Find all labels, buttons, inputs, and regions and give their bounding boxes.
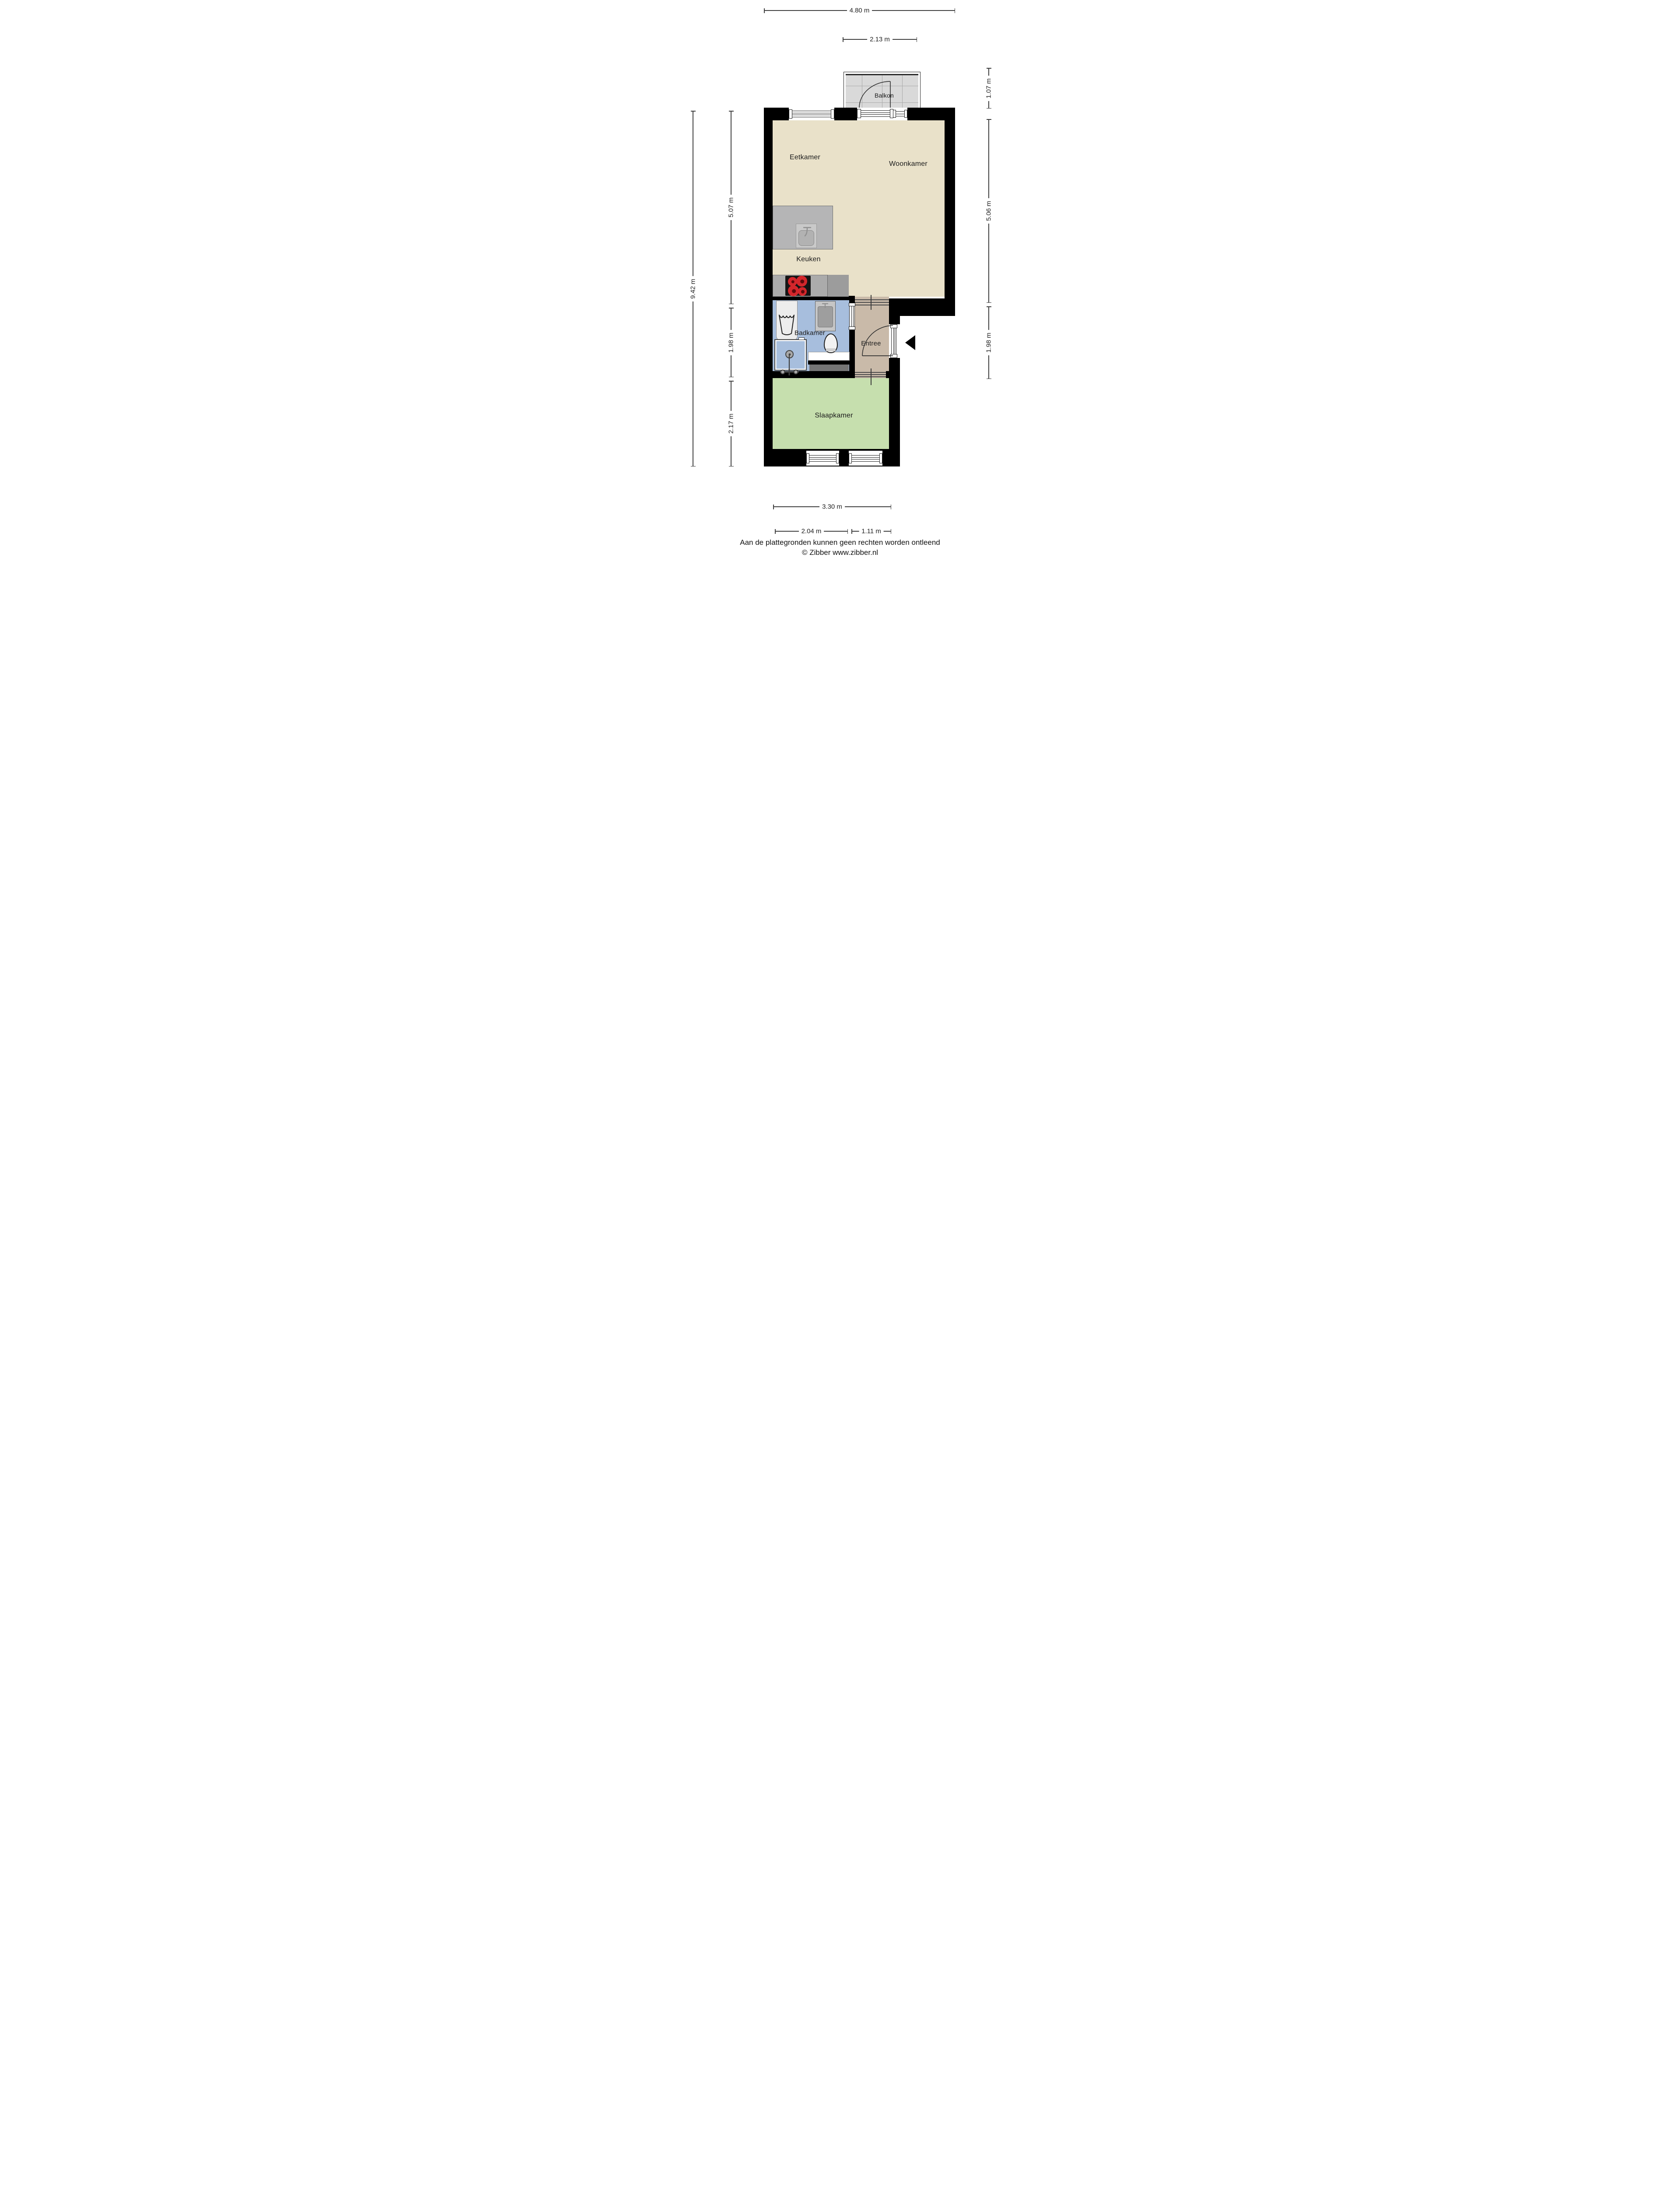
toilet-cistern: [808, 352, 850, 361]
room-label-balkon: Balkon: [875, 92, 894, 99]
kitchen-counter-tall-unit: [827, 275, 849, 297]
door-cap: [890, 354, 897, 358]
dimension-label: 4.80 m: [847, 7, 872, 15]
shower-door-handle: [798, 337, 805, 340]
dimension-label: 2.04 m: [799, 527, 824, 536]
window-cap: [831, 109, 834, 119]
dimension-label: 1.98 m: [985, 330, 993, 355]
cooktop-burner: [788, 277, 797, 286]
door-cap: [890, 324, 897, 328]
dimension-label: 2.13 m: [867, 35, 892, 44]
balcony-slider-panel-small: [896, 111, 905, 116]
window-cap: [893, 110, 896, 118]
balcony-floor: [846, 74, 918, 108]
dimension-label: 1.07 m: [985, 76, 993, 101]
window-cap: [789, 109, 792, 119]
door-jamb-line: [851, 303, 852, 330]
door-jamb-line: [853, 303, 854, 330]
dimension-label: 5.07 m: [727, 195, 735, 220]
window-glass-line: [852, 459, 879, 459]
footer-disclaimer: Aan de plattegronden kunnen geen rechten…: [630, 537, 1050, 558]
bathroom-sink-basin: [818, 306, 833, 327]
window-cap: [857, 109, 861, 118]
dimension-label: 9.42 m: [689, 276, 697, 302]
room-label-woonkamer: Woonkamer: [889, 160, 927, 168]
wall-left: [764, 108, 773, 466]
wall-right-main: [945, 108, 955, 316]
toilet-niche-wall: [808, 361, 850, 365]
window-bedroom-right-frame: [851, 455, 880, 462]
bathroom-door-frame: [849, 303, 855, 330]
window-bedroom-left-frame: [809, 455, 836, 462]
room-hall: [855, 297, 889, 371]
cooktop-indicator-lights: [803, 277, 804, 278]
wall-top-left-corner: [764, 108, 789, 120]
door-jamb-line: [893, 326, 894, 356]
dimension-label: 5.06 m: [985, 198, 993, 224]
dimension-label: 2.17 m: [727, 411, 735, 436]
room-label-entree: Entree: [861, 340, 881, 347]
window-cap: [806, 453, 809, 463]
room-label-slaapkamer: Slaapkamer: [815, 412, 853, 420]
toilet-icon: [824, 333, 838, 353]
dimension-label: 1.11 m: [859, 527, 884, 536]
passage-living-hall-line: [855, 305, 889, 305]
passage-living-hall-line: [855, 302, 889, 303]
window-glass-line: [792, 113, 831, 113]
passage-living-hall-line: [855, 299, 889, 300]
window-cap: [879, 453, 882, 463]
window-glass-line: [861, 114, 890, 115]
balcony-wall-edge: [846, 74, 918, 75]
entrance-arrow: [905, 335, 915, 350]
wall-main-bottom-step: [889, 298, 955, 316]
door-jamb-line: [895, 326, 895, 356]
cooktop-burner: [798, 287, 807, 296]
copyright-text: © Zibber www.zibber.nl: [630, 547, 1050, 558]
cooktop-burner: [796, 276, 807, 287]
window-glass-line: [809, 459, 836, 459]
wall-hall-right-upper: [889, 316, 900, 324]
window-cap: [849, 453, 852, 463]
dimension-label: 3.30 m: [819, 503, 845, 511]
bathroom-mat: [809, 365, 849, 371]
wall-top-mid: [834, 108, 857, 120]
window-glass-line: [896, 114, 904, 114]
window-glass-line: [852, 457, 879, 458]
disclaimer-text: Aan de plattegronden kunnen geen rechten…: [630, 537, 1050, 547]
front-door-frame: [891, 326, 896, 357]
kitchen-sink-basin: [798, 230, 814, 246]
room-label-keuken: Keuken: [796, 256, 820, 263]
balcony-slider-panel-large: [861, 110, 890, 117]
door-cap: [849, 326, 855, 330]
window-cap: [836, 453, 839, 463]
cooktop-burner: [788, 285, 799, 296]
dimension-label: 1.98 m: [727, 330, 735, 355]
window-cap: [904, 110, 907, 118]
window-glass-line: [809, 457, 836, 458]
floorplan-canvas: Balkon Eetkamer Woonkamer Keuken Badkame…: [630, 0, 1050, 560]
room-label-badkamer: Badkamer: [794, 330, 825, 337]
wall-strip-bedroom-nub: [886, 371, 900, 378]
wall-strip-bedroom-left: [764, 371, 855, 378]
room-label-eetkamer: Eetkamer: [790, 154, 820, 161]
window-glass-line: [861, 112, 890, 113]
window-top-left-frame: [792, 111, 831, 117]
passage-tick: [871, 368, 871, 385]
window-glass-line: [792, 115, 831, 115]
passage-tick: [871, 295, 871, 310]
door-cap: [849, 303, 855, 306]
shower-head: [785, 350, 794, 358]
